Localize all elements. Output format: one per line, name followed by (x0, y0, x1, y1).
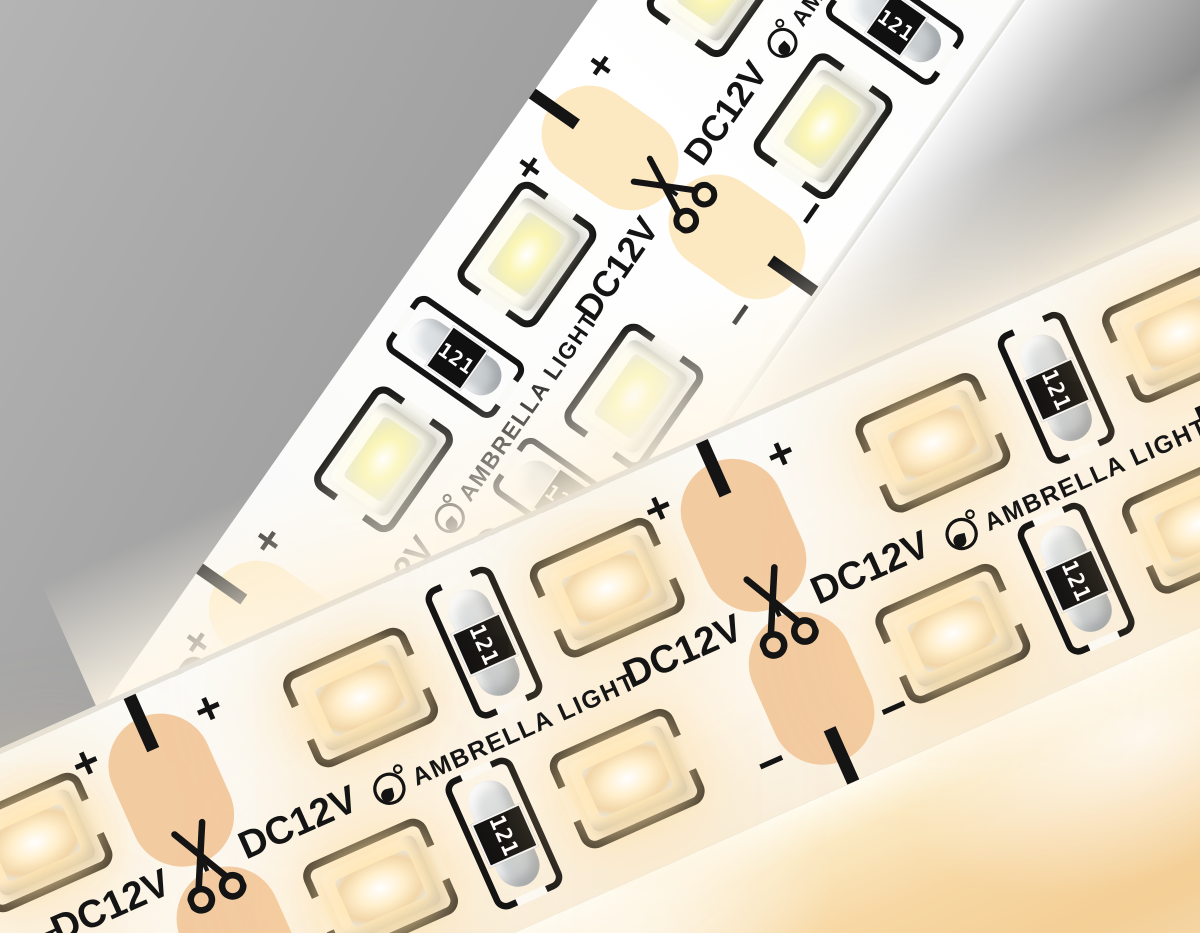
led-package (564, 723, 689, 834)
resistor-code: 121 (1037, 365, 1078, 414)
resistor-package: 121 (1014, 328, 1099, 448)
logo-drop-icon (952, 533, 968, 549)
product-photo-stage: DC12VDC12V++−−AMBRELLA LIGHT121121DC12VD… (0, 0, 1200, 933)
logo-degree-icon (391, 763, 404, 776)
resistor-package: 121 (461, 773, 546, 893)
logo-degree-icon (964, 508, 977, 521)
led-emitter (314, 658, 408, 738)
led-module (278, 623, 443, 772)
resistor-code: 121 (484, 811, 525, 860)
led-package (870, 387, 995, 498)
led-package (545, 532, 670, 643)
resistor-module: 121 (994, 308, 1119, 468)
logo-degree-icon (774, 17, 787, 30)
resistor-label-band: 121 (470, 803, 539, 868)
led-emitter (580, 739, 674, 819)
logo-drop-icon (776, 41, 793, 58)
led-emitter (906, 594, 1000, 674)
led-emitter (675, 0, 757, 28)
resistor-package: 121 (1034, 519, 1119, 639)
led-package (298, 642, 423, 753)
led-emitter (782, 82, 864, 170)
led-emitter (886, 403, 980, 483)
led-emitter (334, 849, 428, 929)
led-emitter (1132, 293, 1200, 373)
led-package (318, 833, 443, 933)
resistor-label-band: 121 (1043, 548, 1112, 613)
resistor-code: 121 (874, 4, 920, 46)
resistor-label-band: 121 (1023, 357, 1092, 422)
led-emitter (1152, 484, 1200, 564)
resistor-package: 121 (841, 0, 949, 70)
resistor-module: 121 (421, 563, 546, 723)
led-emitter (0, 803, 82, 883)
led-module (1097, 258, 1200, 407)
resistor-code: 121 (1057, 556, 1098, 605)
outline-gap (440, 570, 473, 591)
resistor-package: 121 (441, 583, 526, 703)
outline-gap (515, 885, 548, 906)
resistor-label-band: 121 (450, 612, 519, 677)
outline-gap (1087, 630, 1120, 651)
led-emitter (486, 210, 568, 298)
resistor-code: 121 (464, 620, 505, 669)
logo-drop-icon (380, 788, 396, 804)
resistor-label-band: 121 (864, 0, 929, 58)
outline-gap (1012, 315, 1045, 336)
led-module (851, 368, 1016, 517)
led-emitter (560, 548, 654, 628)
